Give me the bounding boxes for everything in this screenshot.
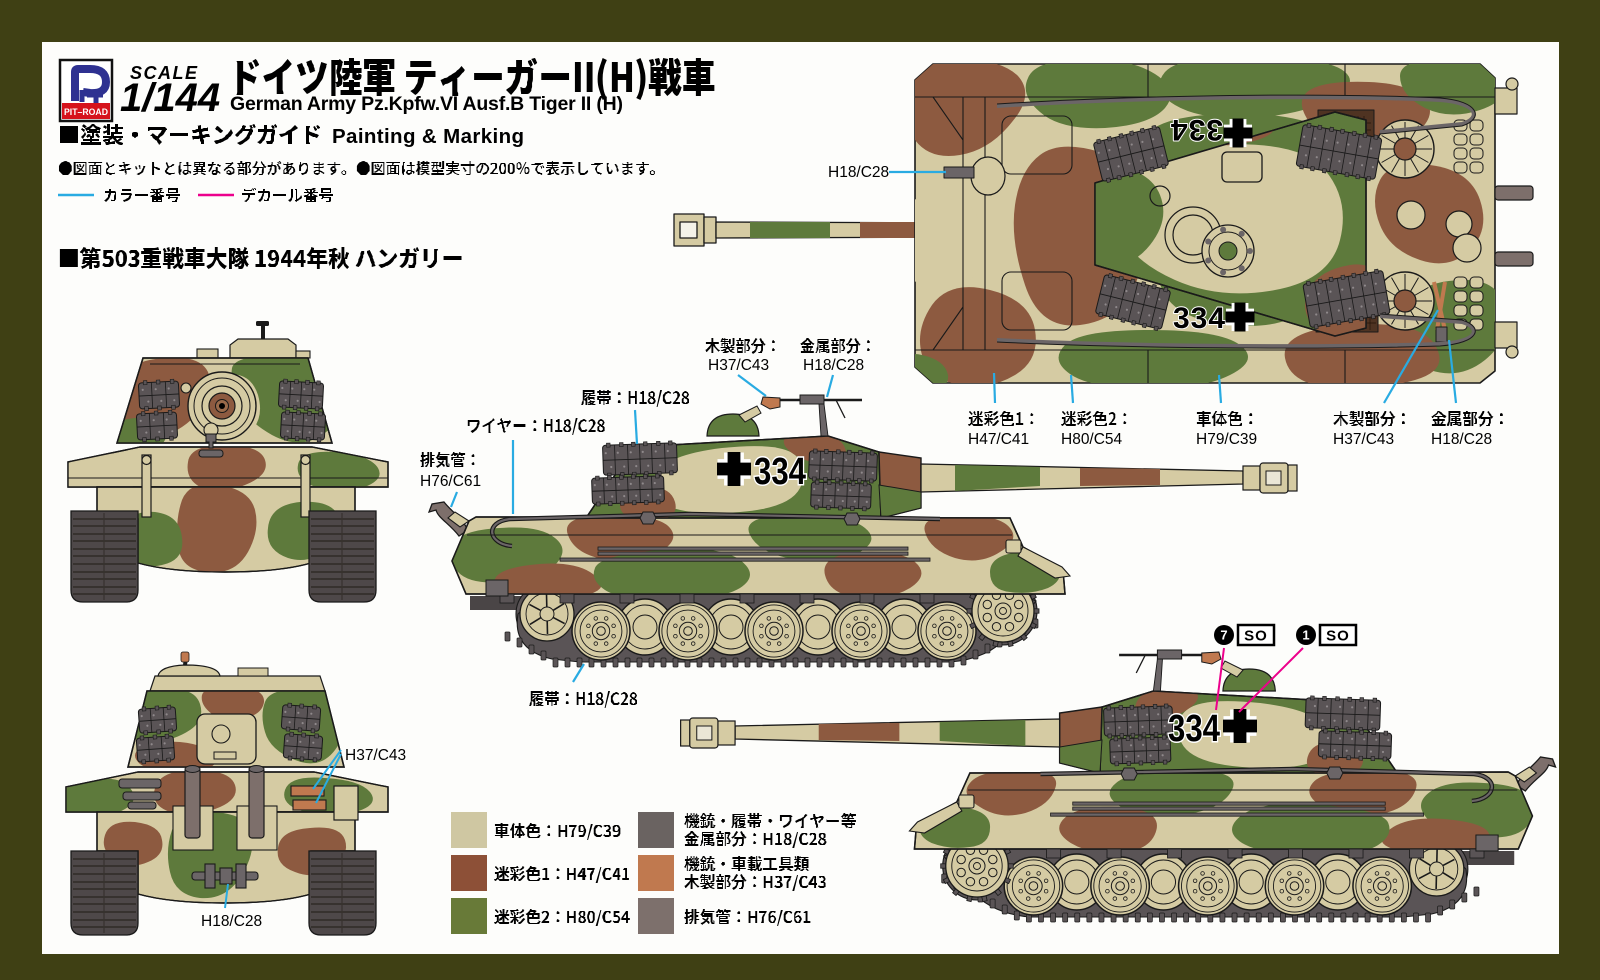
svg-text:H37/C43: H37/C43 [708,357,769,374]
svg-text:SO: SO [1244,628,1268,645]
svg-text:H37/C43: H37/C43 [345,747,406,764]
svg-text:H18/C28: H18/C28 [201,913,262,930]
svg-text:SO: SO [1326,628,1350,645]
svg-text:H37/C43: H37/C43 [1333,431,1394,448]
svg-text:PIT–ROAD: PIT–ROAD [64,107,108,118]
svg-text:334: 334 [754,451,806,493]
svg-text:H79/C39: H79/C39 [1196,431,1257,448]
svg-text:H18/C28: H18/C28 [828,164,889,181]
svg-text:H47/C41: H47/C41 [968,431,1029,448]
svg-text:H18/C28: H18/C28 [1431,431,1492,448]
svg-text:German Army Pz.Kpfw.VI Ausf.B: German Army Pz.Kpfw.VI Ausf.B Tiger II (… [230,93,623,115]
svg-text:1: 1 [1302,628,1309,643]
svg-text:1/144: 1/144 [120,76,220,120]
svg-text:334: 334 [1173,302,1226,335]
svg-text:H80/C54: H80/C54 [1061,431,1123,448]
svg-text:H76/C61: H76/C61 [420,473,481,490]
svg-text:H18/C28: H18/C28 [803,357,864,374]
svg-text:334: 334 [1170,113,1223,146]
svg-text:7: 7 [1220,628,1227,643]
svg-text:334: 334 [1168,708,1220,750]
svg-text:Painting & Marking: Painting & Marking [332,125,524,148]
